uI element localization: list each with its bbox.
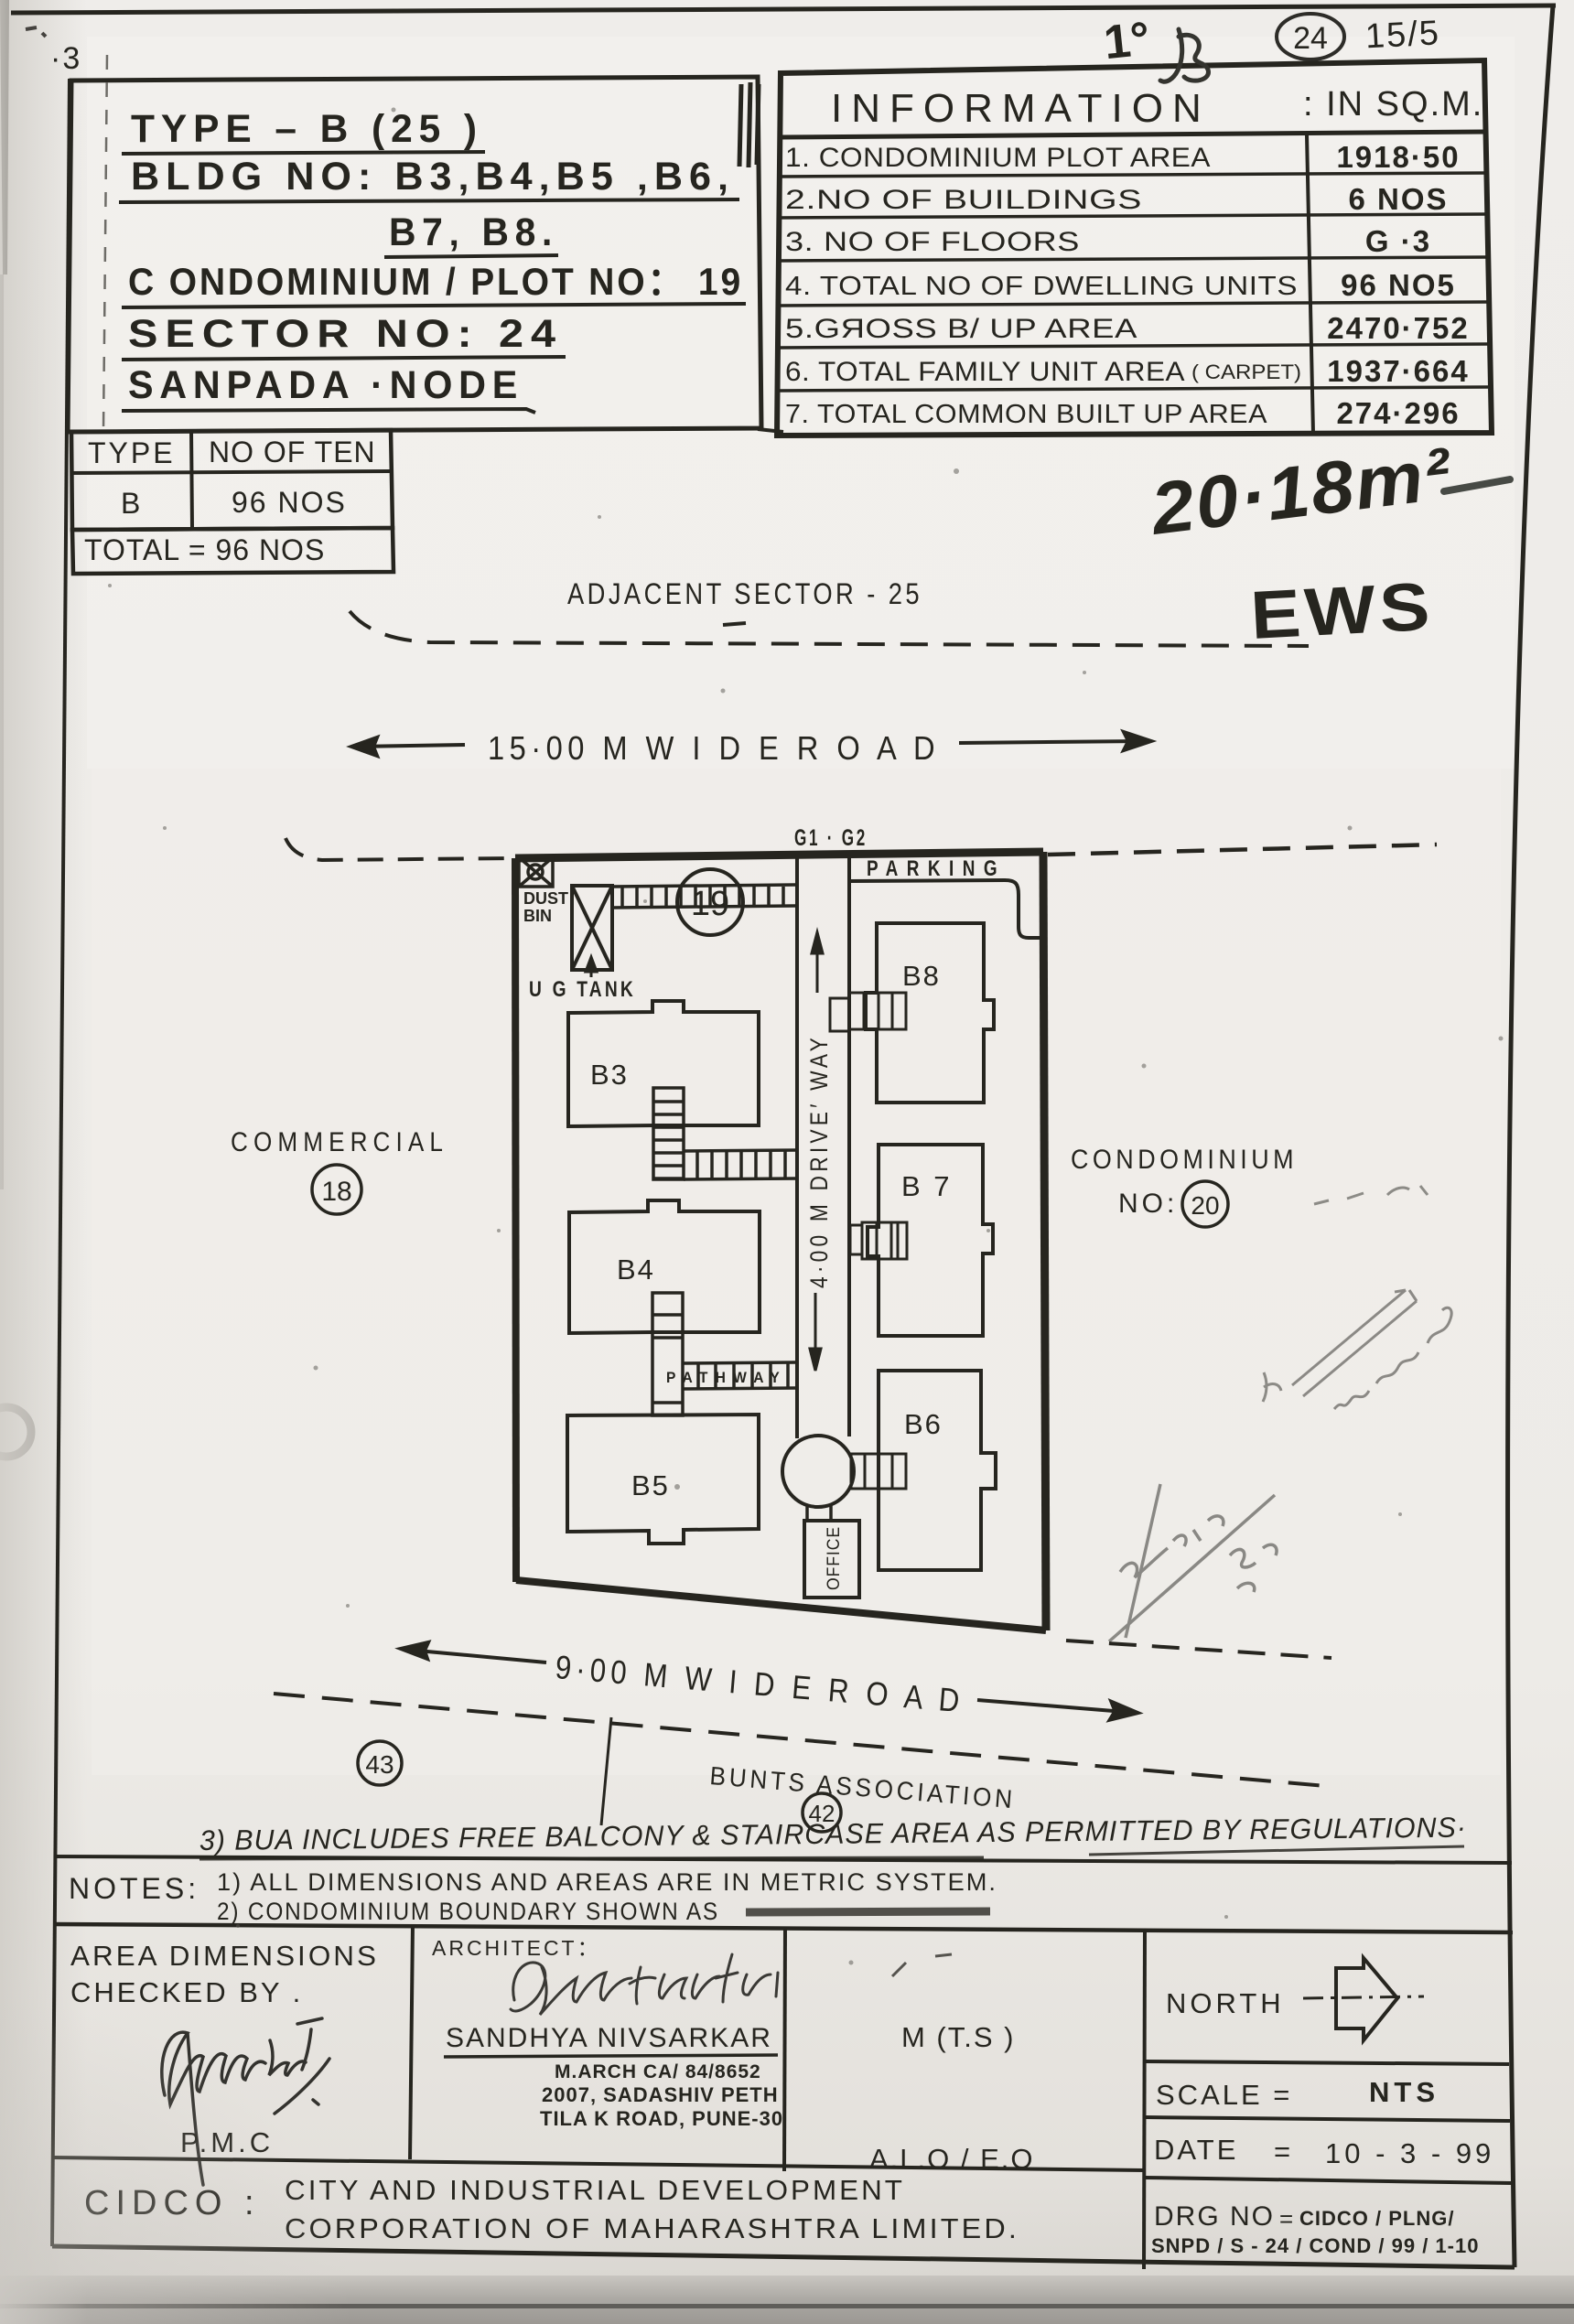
svg-text:B8: B8 [902, 960, 941, 992]
svg-text:ADJACENT SECTOR - 25: ADJACENT SECTOR - 25 [567, 577, 922, 610]
svg-text:2.NO OF BUILDINGS: 2.NO OF BUILDINGS [785, 185, 1142, 215]
svg-text:=: = [1274, 2136, 1290, 2168]
svg-text:6. TOTAL FAMILY UNIT AREA: 6. TOTAL FAMILY UNIT AREA [785, 357, 1185, 387]
svg-text:NO:: NO: [1118, 1189, 1178, 1219]
svg-text:NORTH: NORTH [1166, 1987, 1285, 2019]
svg-text:1937·664: 1937·664 [1327, 354, 1469, 388]
svg-text:B7‚ B8.: B7‚ B8. [389, 210, 558, 254]
svg-text:·3: ·3 [50, 41, 81, 76]
svg-text:19: 19 [691, 885, 729, 923]
svg-text:M (T.S ): M (T.S ) [901, 2021, 1016, 2053]
svg-text:4. TOTAL NO OF DWELLING UNI: 4. TOTAL NO OF DWELLING UNITS [785, 272, 1298, 301]
svg-text:3. NO OF FLOORS: 3. NO OF FLOORS [785, 227, 1080, 257]
svg-text:=: = [1279, 2205, 1293, 2233]
svg-text:1°: 1° [1102, 12, 1153, 70]
svg-text:B5: B5 [631, 1469, 670, 1501]
svg-text:SECTOR NO: 24: SECTOR NO: 24 [128, 312, 563, 356]
svg-text:DUST: DUST [523, 889, 568, 908]
svg-text:TOTAL = 96 NOS: TOTAL = 96 NOS [84, 533, 325, 566]
svg-text:B: B [121, 487, 141, 520]
svg-text:PATHWAY: PATHWAY [666, 1369, 787, 1386]
svg-text:B3: B3 [590, 1059, 629, 1091]
svg-text:B6: B6 [904, 1408, 943, 1440]
svg-text:TYPE – B (25 ): TYPE – B (25 ) [131, 107, 483, 151]
svg-text:CIDCO / PLNG/: CIDCO / PLNG/ [1299, 2207, 1454, 2230]
svg-text:10 - 3 - 99: 10 - 3 - 99 [1325, 2137, 1494, 2169]
svg-text:20: 20 [1191, 1191, 1219, 1220]
svg-text:BLDG NO: B3‚B4‚B5 ‚B6‚: BLDG NO: B3‚B4‚B5 ‚B6‚ [131, 155, 735, 199]
svg-text:15·00 M W I D E R O A D: 15·00 M W I D E R O A D [488, 729, 940, 767]
svg-text:96 NOS: 96 NOS [232, 486, 347, 519]
svg-text:NTS: NTS [1369, 2076, 1439, 2108]
svg-text:5.GЯOSS B/ UP AREA: 5.GЯOSS B/ UP AREA [785, 314, 1137, 344]
svg-text:DRG NO: DRG NO [1154, 2201, 1275, 2232]
svg-text:B4: B4 [617, 1253, 655, 1286]
svg-text:: IN SQ.M.: : IN SQ.M. [1303, 85, 1483, 124]
svg-text:NO OF TEN: NO OF TEN [209, 436, 376, 468]
svg-text:COMMERCIAL: COMMERCIAL [231, 1127, 448, 1157]
svg-text:OFFICE: OFFICE [825, 1526, 844, 1590]
svg-text:INFORMATION: INFORMATION [831, 86, 1211, 131]
svg-text:SCALE =: SCALE = [1156, 2079, 1292, 2111]
svg-text:2470·752: 2470·752 [1327, 311, 1469, 345]
svg-text:4·00 M DRIVE′ WAY: 4·00 M DRIVE′ WAY [805, 1034, 833, 1288]
svg-text:15/5: 15/5 [1364, 14, 1441, 56]
svg-text:1. CONDOMINIUM PLOT AREA: 1. CONDOMINIUM PLOT AREA [785, 143, 1211, 173]
svg-text:PARKING: PARKING [867, 856, 1006, 881]
svg-text:24: 24 [1293, 21, 1328, 56]
svg-text:1918·50: 1918·50 [1336, 140, 1460, 174]
svg-text:96 NO5: 96 NO5 [1341, 268, 1456, 302]
svg-text:C ONDOMINIUM / PLOT NO： 19: C ONDOMINIUM / PLOT NO： 19 [128, 260, 743, 303]
svg-text:G1 · G2: G1 · G2 [794, 825, 868, 851]
svg-text:SANPADA ·NODE: SANPADA ·NODE [128, 363, 523, 407]
svg-text:SNPD / S - 24 / COND / 99 / 1-: SNPD / S - 24 / COND / 99 / 1-10 [1151, 2234, 1479, 2257]
svg-text:6 NOS: 6 NOS [1348, 182, 1448, 216]
svg-text:18: 18 [321, 1177, 351, 1207]
svg-text:( CARPET): ( CARPET) [1191, 360, 1301, 383]
svg-text:G ·3: G ·3 [1365, 224, 1431, 258]
svg-text:DATE: DATE [1154, 2134, 1238, 2166]
svg-text:U G TANK: U G TANK [529, 977, 636, 1002]
svg-text:7. TOTAL COMMON BUILT UP AR: 7. TOTAL COMMON BUILT UP AREA [785, 400, 1267, 429]
svg-text:BIN: BIN [523, 907, 552, 925]
svg-text:CONDOMINIUM: CONDOMINIUM [1071, 1145, 1298, 1175]
svg-text:TYPE: TYPE [88, 436, 176, 469]
svg-text:274·296: 274·296 [1336, 396, 1460, 430]
svg-text:B 7: B 7 [901, 1170, 953, 1202]
svg-text:EWS: EWS [1248, 568, 1435, 653]
